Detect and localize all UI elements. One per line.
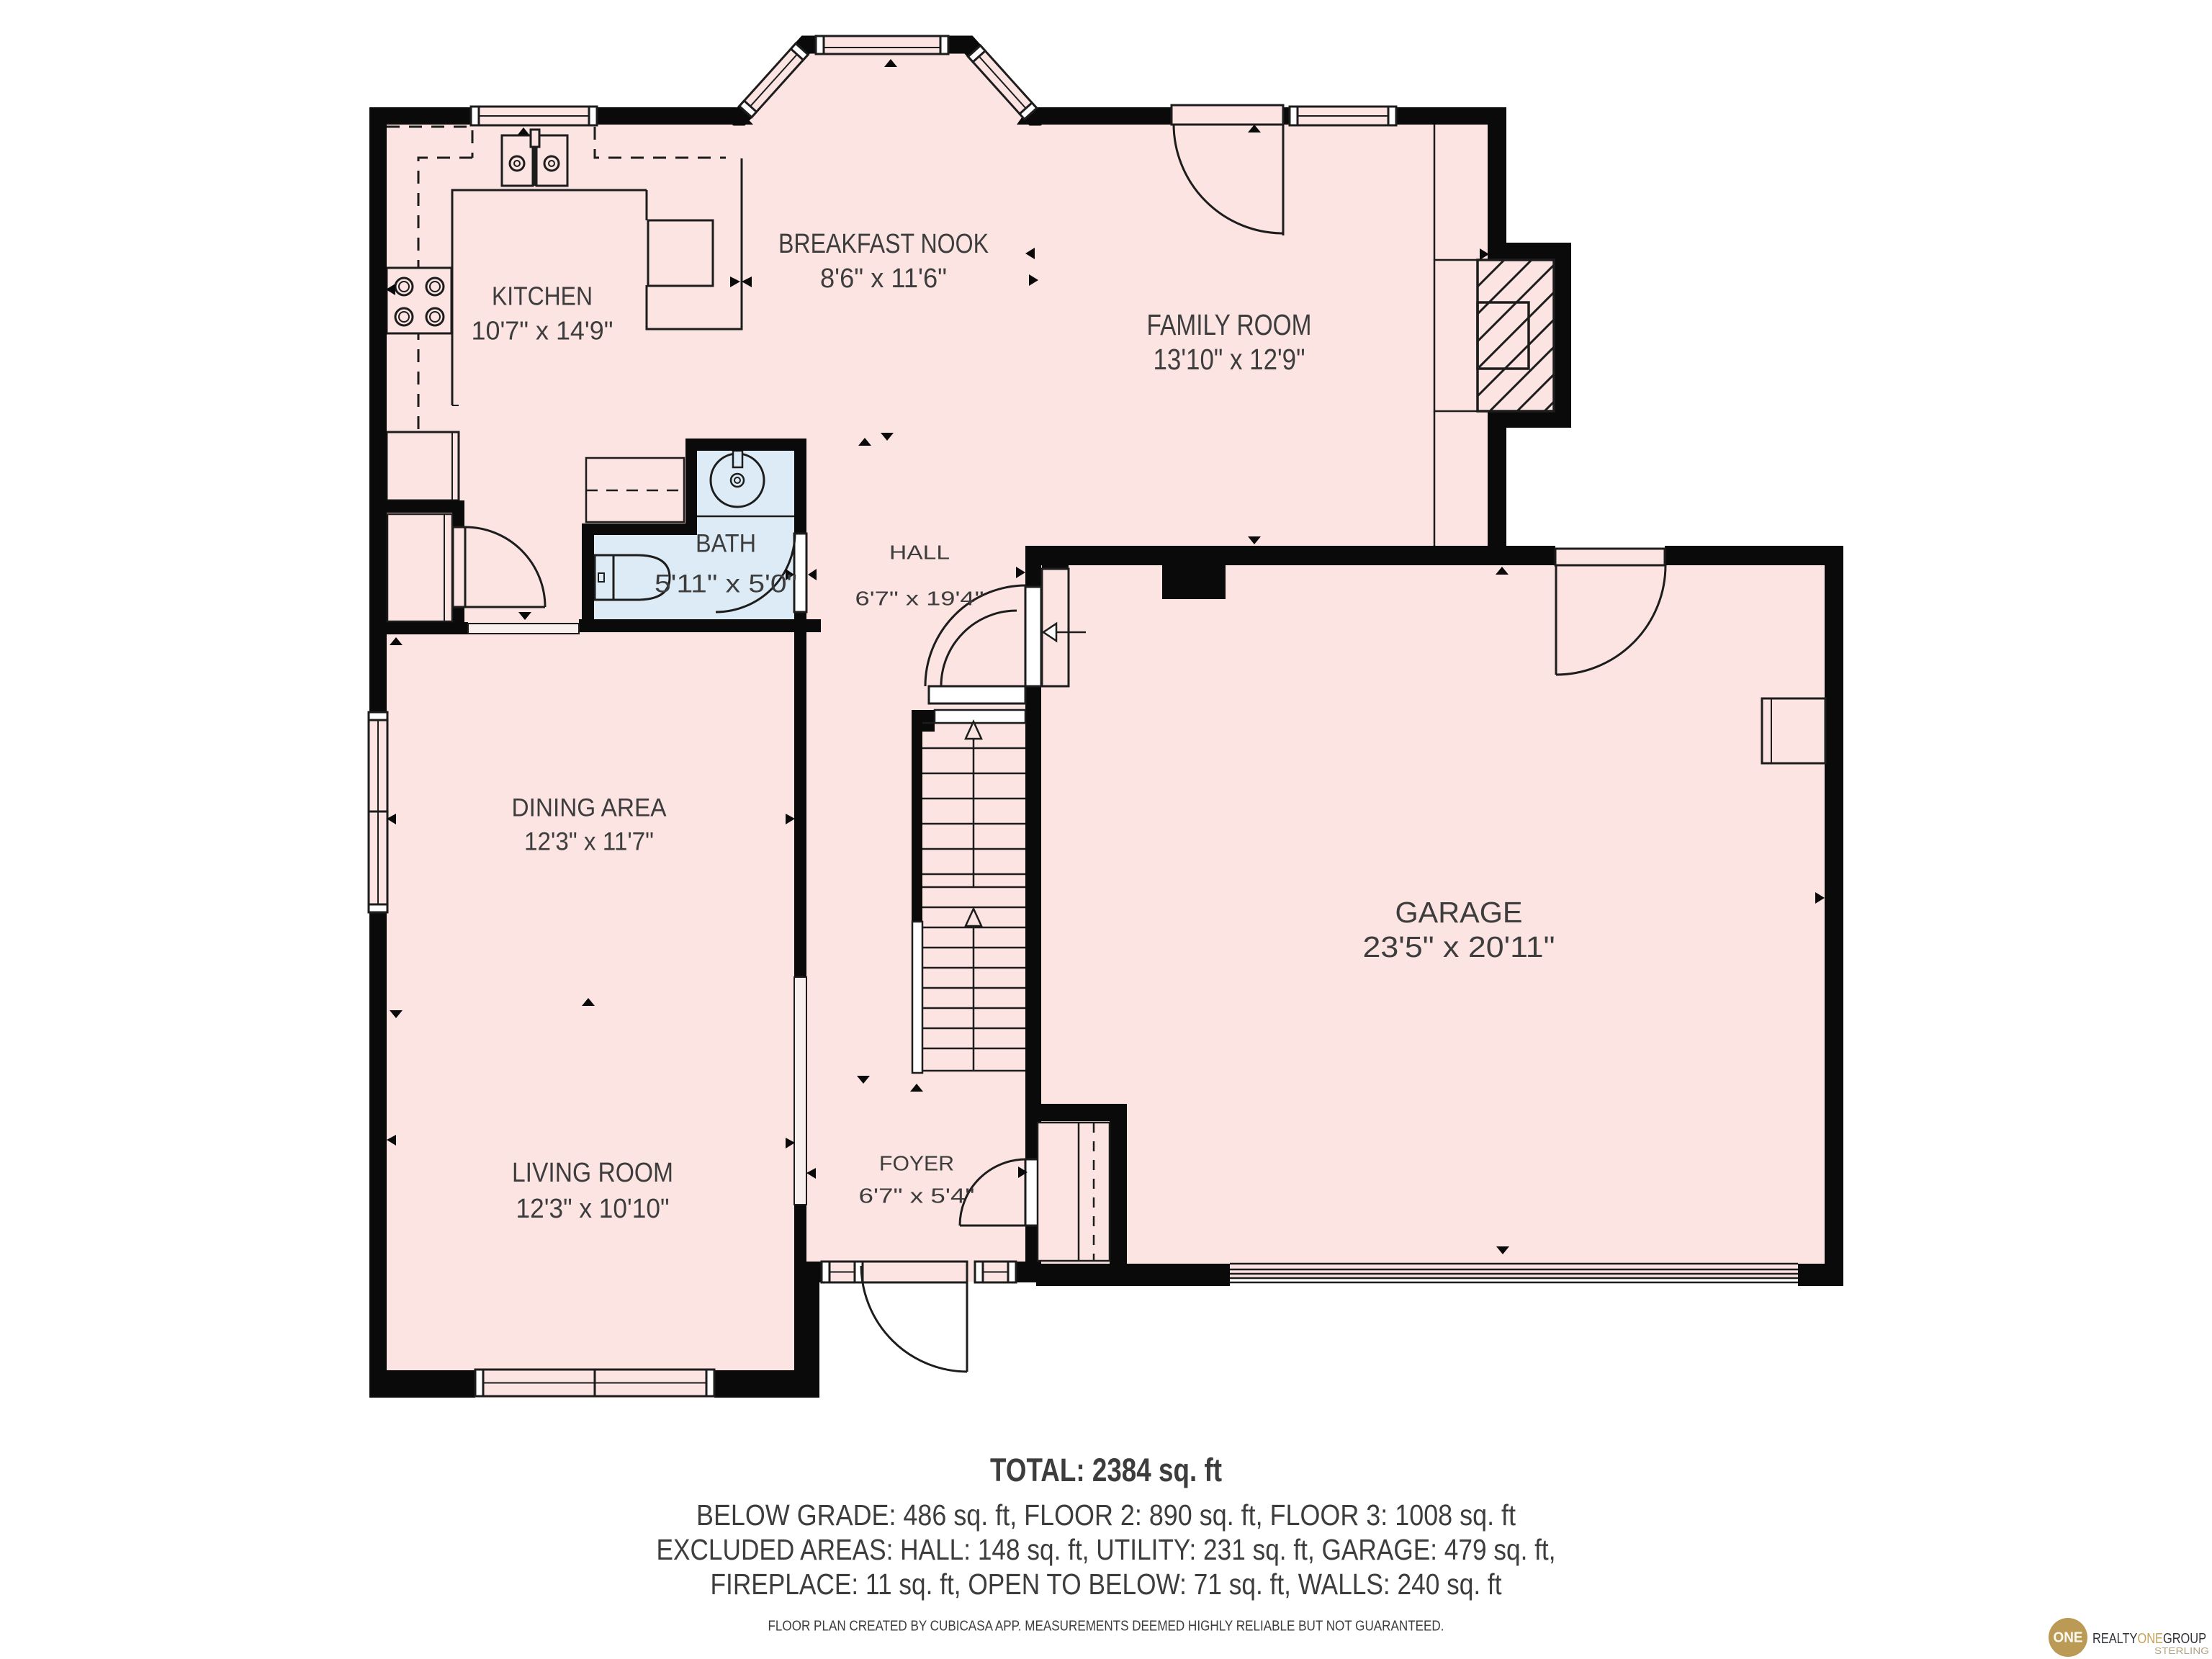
- svg-text:12'3" x 10'10": 12'3" x 10'10": [516, 1194, 670, 1224]
- svg-text:FOYER: FOYER: [879, 1153, 954, 1176]
- svg-text:6'7" x 19'4": 6'7" x 19'4": [855, 587, 984, 609]
- svg-text:ONE: ONE: [2054, 1629, 2083, 1645]
- svg-text:LIVING ROOM: LIVING ROOM: [512, 1158, 673, 1188]
- svg-text:10'7" x 14'9": 10'7" x 14'9": [472, 316, 613, 346]
- svg-text:TOTAL: 2384 sq. ft: TOTAL: 2384 sq. ft: [990, 1452, 1222, 1488]
- svg-text:BREAKFAST NOOK: BREAKFAST NOOK: [778, 229, 989, 259]
- svg-text:BATH: BATH: [696, 529, 756, 557]
- svg-text:13'10" x 12'9": 13'10" x 12'9": [1154, 343, 1305, 376]
- svg-text:HALL: HALL: [889, 541, 950, 563]
- svg-text:6'7" x 5'4": 6'7" x 5'4": [859, 1185, 975, 1208]
- svg-text:FLOOR PLAN CREATED BY CUBICASA: FLOOR PLAN CREATED BY CUBICASA APP. MEAS…: [768, 1618, 1444, 1634]
- svg-text:FIREPLACE: 11 sq. ft, OPEN TO: FIREPLACE: 11 sq. ft, OPEN TO BELOW: 71 …: [711, 1568, 1503, 1601]
- svg-text:BELOW GRADE: 486 sq. ft, FLOOR: BELOW GRADE: 486 sq. ft, FLOOR 2: 890 sq…: [696, 1498, 1516, 1532]
- svg-text:FAMILY ROOM: FAMILY ROOM: [1147, 308, 1312, 341]
- svg-text:EXCLUDED AREAS: HALL: 148 sq.: EXCLUDED AREAS: HALL: 148 sq. ft, UTILIT…: [657, 1533, 1556, 1566]
- svg-text:GARAGE: GARAGE: [1395, 896, 1523, 929]
- svg-text:5'11" x 5'0": 5'11" x 5'0": [655, 570, 797, 598]
- svg-text:REALTYONEGROUP: REALTYONEGROUP: [2092, 1631, 2206, 1647]
- svg-text:DINING AREA: DINING AREA: [512, 793, 667, 822]
- svg-text:8'6" x 11'6": 8'6" x 11'6": [820, 264, 947, 294]
- svg-text:KITCHEN: KITCHEN: [492, 282, 593, 311]
- svg-text:STERLING: STERLING: [2154, 1645, 2209, 1656]
- svg-text:12'3" x 11'7": 12'3" x 11'7": [524, 827, 654, 855]
- svg-text:23'5" x 20'11": 23'5" x 20'11": [1363, 930, 1555, 963]
